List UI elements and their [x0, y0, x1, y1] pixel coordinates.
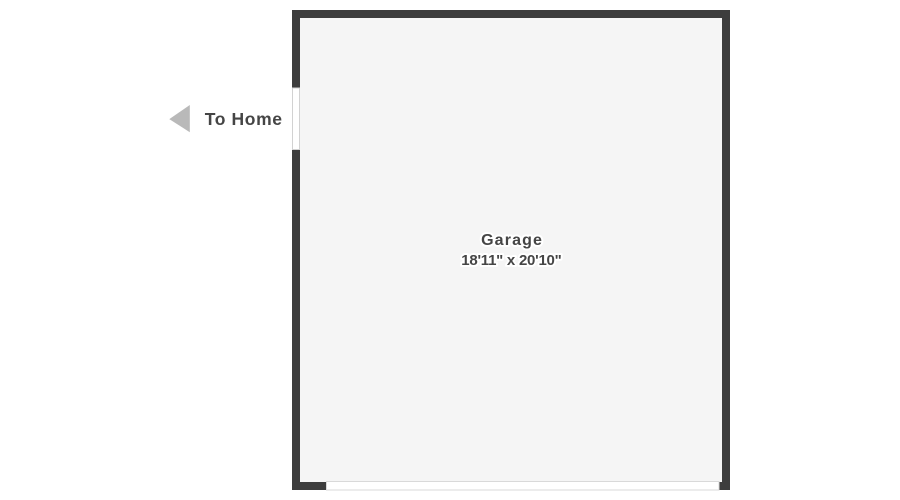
svg-text:18'11" x 20'10": 18'11" x 20'10" — [461, 252, 561, 269]
svg-text:To Home: To Home — [205, 109, 283, 129]
svg-text:Garage: Garage — [481, 232, 543, 249]
